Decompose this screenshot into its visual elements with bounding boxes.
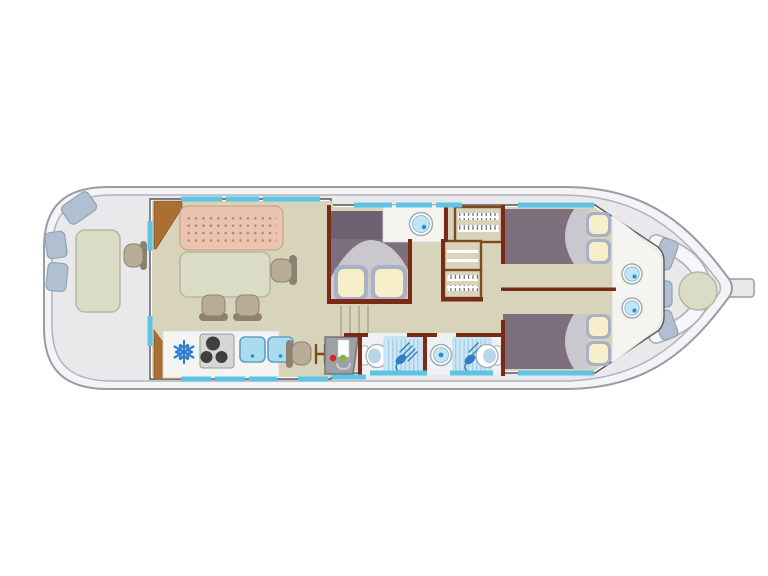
window	[263, 197, 320, 202]
washbasin-drain	[439, 353, 444, 358]
double-bed	[503, 314, 574, 369]
pillow-inner	[589, 344, 608, 363]
window	[181, 377, 211, 382]
heater-door	[338, 340, 349, 357]
pillow-inner	[589, 317, 608, 336]
window	[148, 316, 153, 346]
bathroom-aft	[427, 333, 501, 375]
wall	[344, 333, 368, 337]
pillow-inner	[589, 215, 608, 234]
burner	[201, 351, 213, 363]
desk-chair	[286, 340, 311, 368]
stern-table	[679, 272, 717, 310]
pillow-inner	[375, 269, 403, 297]
indicator-light-red	[330, 355, 337, 362]
burner	[216, 351, 228, 363]
window	[518, 203, 594, 208]
chair-seat	[236, 295, 259, 316]
window	[148, 221, 153, 251]
dining-chair	[233, 295, 262, 321]
wall	[407, 333, 437, 337]
window	[436, 203, 462, 208]
washbasin	[622, 298, 642, 318]
wall	[456, 333, 505, 337]
hanging-wardrobe	[444, 270, 481, 298]
washbasin	[410, 213, 433, 236]
indicator-light-green	[340, 355, 347, 362]
wall	[441, 239, 445, 301]
double-bed	[503, 209, 574, 264]
washbasin	[622, 264, 642, 284]
wall	[501, 320, 505, 376]
shelf	[447, 250, 478, 253]
sink-drain	[251, 354, 255, 358]
window	[298, 377, 328, 382]
wall	[327, 299, 412, 304]
floor-plan-canvas	[0, 0, 768, 576]
wall	[441, 297, 483, 302]
boat-floor-plan	[0, 0, 768, 576]
heater-unit	[325, 337, 358, 374]
washbasin-drain	[422, 225, 426, 229]
sink	[240, 337, 265, 362]
helm-chair	[124, 241, 147, 270]
window	[226, 197, 259, 202]
chair-seat	[202, 295, 225, 316]
window	[518, 371, 594, 376]
bow-seat-cushion	[44, 231, 67, 260]
washbasin-bowl	[625, 267, 639, 281]
dining-chair	[199, 295, 228, 321]
toilet-seat	[483, 349, 496, 364]
hanger-rail	[447, 285, 478, 291]
aft-cabin-starboard	[503, 314, 611, 369]
wall	[423, 337, 427, 375]
toilet-seat	[368, 349, 381, 364]
sofa-bench-upholstery	[186, 212, 277, 245]
window	[354, 203, 392, 208]
bathroom-forward	[361, 333, 423, 375]
pillow-inner	[338, 269, 364, 297]
washbasin-drain	[633, 309, 637, 313]
burner	[206, 337, 220, 351]
window	[215, 377, 245, 382]
bow-table	[76, 230, 120, 312]
aft-cabin-port	[503, 209, 611, 264]
wall	[327, 205, 331, 303]
chair-seat	[271, 259, 292, 282]
hanger-rail	[458, 225, 499, 232]
wall	[408, 239, 412, 303]
window	[332, 375, 366, 380]
toilet	[476, 345, 501, 368]
chair-seat	[124, 244, 143, 267]
chair-seat	[292, 342, 311, 365]
window	[396, 203, 432, 208]
center-wall	[501, 288, 616, 292]
hanging-wardrobe	[455, 207, 502, 242]
washbasin-bowl	[625, 301, 639, 315]
sink-drain	[279, 354, 283, 358]
shelf	[447, 259, 478, 262]
shelf-unit	[444, 241, 481, 271]
hanger-rail	[447, 275, 478, 281]
window	[370, 371, 427, 376]
window	[249, 377, 277, 382]
hanger-rail	[458, 213, 499, 220]
pillow-inner	[589, 242, 608, 261]
window	[450, 371, 493, 376]
washbasin-bowl	[413, 216, 430, 233]
wall	[501, 205, 505, 264]
bow-seat-cushion	[46, 262, 69, 292]
headboard-locker	[331, 211, 383, 241]
washbasin-drain	[633, 275, 637, 279]
wall	[358, 337, 362, 375]
window	[181, 197, 222, 202]
washbasin	[431, 345, 452, 366]
wall	[444, 205, 448, 242]
dining-table	[180, 252, 270, 297]
